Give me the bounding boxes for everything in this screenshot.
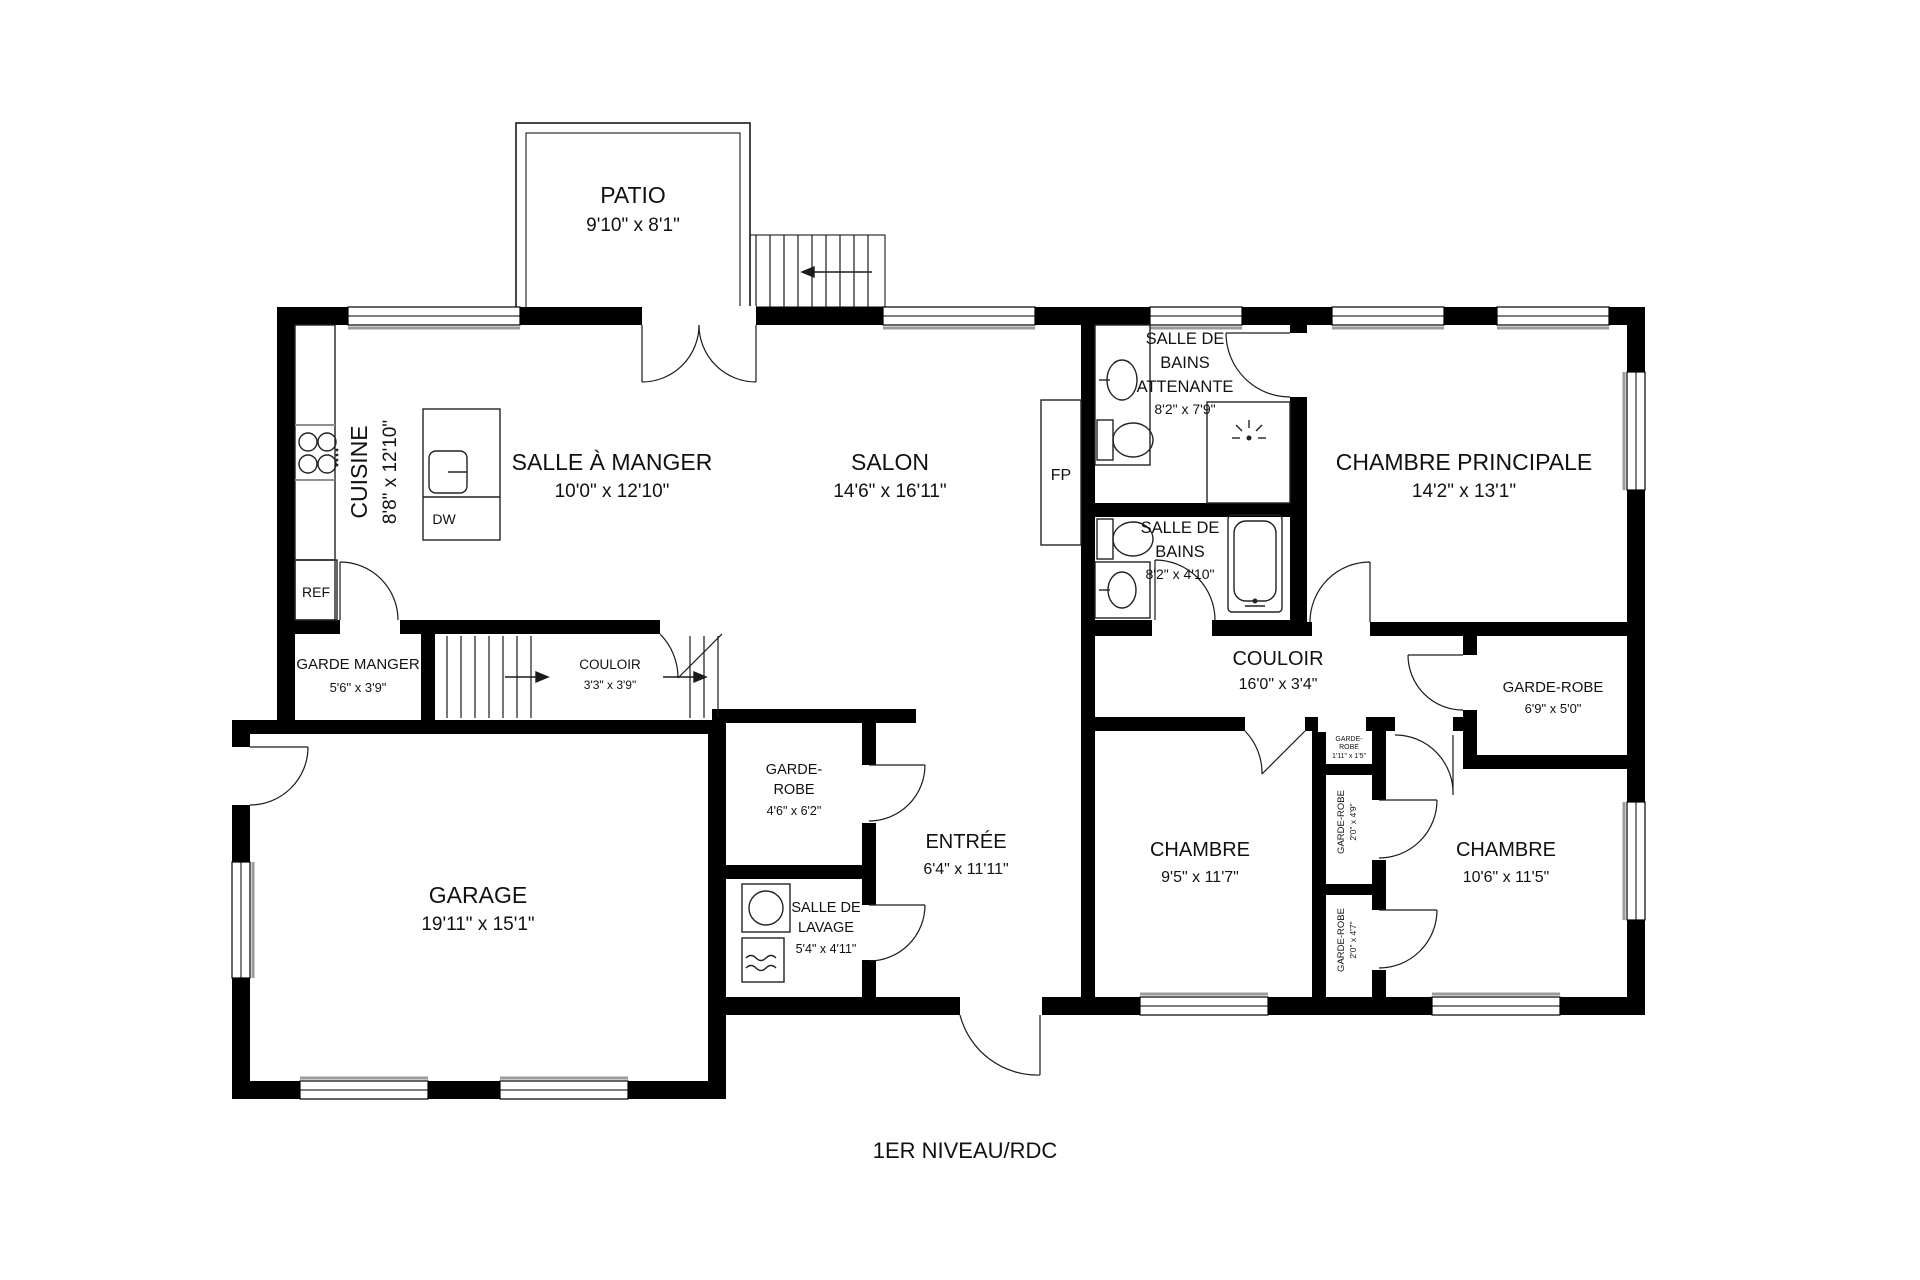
- walls: [232, 307, 1645, 1099]
- room-label-sdb-attenante-1: SALLE DE: [1146, 330, 1225, 348]
- garage-side-door: [250, 747, 308, 805]
- ensuite-bath-door: [1226, 333, 1290, 397]
- room-dims-couloir-escalier: 3'3" x 3'9": [584, 678, 636, 692]
- fireplace-label: FP: [1051, 467, 1071, 484]
- room-dims-chambre-droite: 10'6" x 11'5": [1463, 869, 1550, 886]
- floor-plan-canvas: PATIO 9'10" x 8'1" CUISINE 8'8" x 12'10"…: [0, 0, 1920, 1280]
- room-label-salon: SALON: [851, 449, 929, 475]
- room-label-couloir: COULOIR: [1232, 648, 1323, 670]
- right-bedroom-door: [1395, 735, 1453, 795]
- window: [300, 1078, 428, 1099]
- window: [1332, 307, 1444, 328]
- room-dims-garde-robe-entree: 4'6" x 6'2": [767, 804, 822, 818]
- dishwasher-label: DW: [432, 511, 456, 527]
- window: [232, 862, 253, 978]
- floor-plan-page: PATIO 9'10" x 8'1" CUISINE 8'8" x 12'10"…: [0, 0, 1920, 1280]
- room-label-garde-robe-haut: GARDE-ROBE: [1336, 790, 1347, 854]
- room-label-garde-robe-petit-1: GARDE-: [1335, 736, 1363, 743]
- patio-stairs-icon: [750, 235, 885, 307]
- window: [1432, 994, 1560, 1015]
- strip-closet-lower-door: [1379, 910, 1437, 968]
- stove-icon: [299, 433, 338, 473]
- mid-bedroom-door: [1245, 731, 1305, 774]
- laundry-sink-icon: [742, 938, 784, 982]
- ensuite-sink-icon: [1099, 360, 1137, 400]
- right-closet-door: [1408, 655, 1463, 710]
- room-label-chambre-centre: CHAMBRE: [1150, 839, 1250, 861]
- room-label-chambre-droite: CHAMBRE: [1456, 839, 1556, 861]
- window: [348, 307, 520, 328]
- hallbath-sink-icon: [1099, 572, 1136, 608]
- room-dims-couloir: 16'0" x 3'4": [1239, 676, 1318, 693]
- refrigerator-label: REF: [302, 584, 330, 600]
- room-dims-patio: 9'10" x 8'1": [586, 215, 680, 236]
- room-dims-chambre-principale: 14'2" x 13'1": [1412, 481, 1516, 502]
- window: [1140, 994, 1268, 1015]
- window: [500, 1078, 628, 1099]
- room-label-garde-robe-entree-1: GARDE-: [766, 762, 823, 778]
- room-label-sdb-2: BAINS: [1155, 543, 1205, 561]
- laundry-door: [869, 905, 925, 961]
- washer-icon: [742, 884, 790, 932]
- room-label-garde-manger: GARDE MANGER: [296, 656, 420, 673]
- room-label-chambre-principale: CHAMBRE PRINCIPALE: [1336, 449, 1592, 475]
- room-label-garde-robe-entree-2: ROBE: [773, 782, 814, 798]
- pantry-door: [340, 562, 398, 620]
- room-dims-salle-lavage: 5'4" x 4'11": [796, 942, 857, 956]
- room-label-sdb-1: SALLE DE: [1141, 519, 1220, 537]
- room-dims-chambre-centre: 9'5" x 11'7": [1161, 869, 1239, 886]
- basement-stair-door: [660, 634, 722, 678]
- island-sink-icon: [429, 451, 467, 493]
- room-label-sdb-attenante-3: ATTENANTE: [1137, 378, 1234, 396]
- strip-closet-upper-door: [1379, 800, 1437, 858]
- room-label-garde-robe-bas: GARDE-ROBE: [1336, 908, 1347, 972]
- room-label-garage: GARAGE: [429, 882, 527, 908]
- windows: [232, 307, 1645, 1099]
- patio-double-door: [642, 325, 756, 382]
- room-dims-garage: 19'11" x 15'1": [421, 914, 534, 935]
- room-label-salle-a-manger: SALLE À MANGER: [512, 449, 713, 475]
- room-label-couloir-escalier: COULOIR: [579, 657, 641, 672]
- room-dims-cuisine: 8'8" x 12'10": [380, 420, 401, 524]
- bathtub-icon: [1228, 515, 1282, 612]
- room-dims-garde-robe-petit: 1'11" x 1'5": [1332, 753, 1366, 760]
- room-dims-salle-a-manger: 10'0" x 12'10": [555, 481, 670, 502]
- front-door: [960, 1015, 1040, 1075]
- room-label-garde-robe-petit-2: ROBE: [1339, 744, 1359, 751]
- room-dims-garde-manger: 5'6" x 3'9": [330, 680, 387, 695]
- room-label-patio: PATIO: [600, 182, 666, 208]
- window: [1624, 372, 1645, 490]
- stair-direction-arrow: [802, 267, 872, 277]
- window: [1624, 802, 1645, 920]
- room-label-garde-robe-droite: GARDE-ROBE: [1503, 679, 1604, 696]
- room-dims-garde-robe-haut: 2'0" x 4'9": [1348, 803, 1358, 840]
- room-dims-sdb-attenante: 8'2" x 7'9": [1154, 401, 1215, 417]
- window: [883, 307, 1035, 328]
- plan-title: 1ER NIVEAU/RDC: [873, 1138, 1058, 1163]
- room-dims-entree: 6'4" x 11'11": [923, 861, 1008, 878]
- ensuite-toilet-icon: [1097, 420, 1153, 460]
- entry-closet-door: [869, 765, 925, 821]
- basement-stairs-icon: [447, 636, 718, 718]
- room-label-entree: ENTRÉE: [925, 830, 1006, 853]
- room-label-salle-lavage-2: LAVAGE: [798, 920, 854, 936]
- room-label-cuisine: CUISINE: [346, 425, 372, 518]
- room-label-sdb-attenante-2: BAINS: [1160, 354, 1210, 372]
- room-dims-salon: 14'6" x 16'11": [833, 481, 946, 502]
- window: [1150, 307, 1242, 328]
- room-dims-sdb: 8'2" x 4'10": [1146, 566, 1215, 582]
- room-dims-garde-robe-droite: 6'9" x 5'0": [1525, 701, 1582, 716]
- room-label-salle-lavage-1: SALLE DE: [791, 900, 861, 916]
- shower-icon: [1207, 402, 1290, 503]
- room-dims-garde-robe-bas: 2'0" x 4'7": [1348, 921, 1358, 958]
- window: [1497, 307, 1609, 328]
- master-bedroom-door: [1310, 562, 1370, 622]
